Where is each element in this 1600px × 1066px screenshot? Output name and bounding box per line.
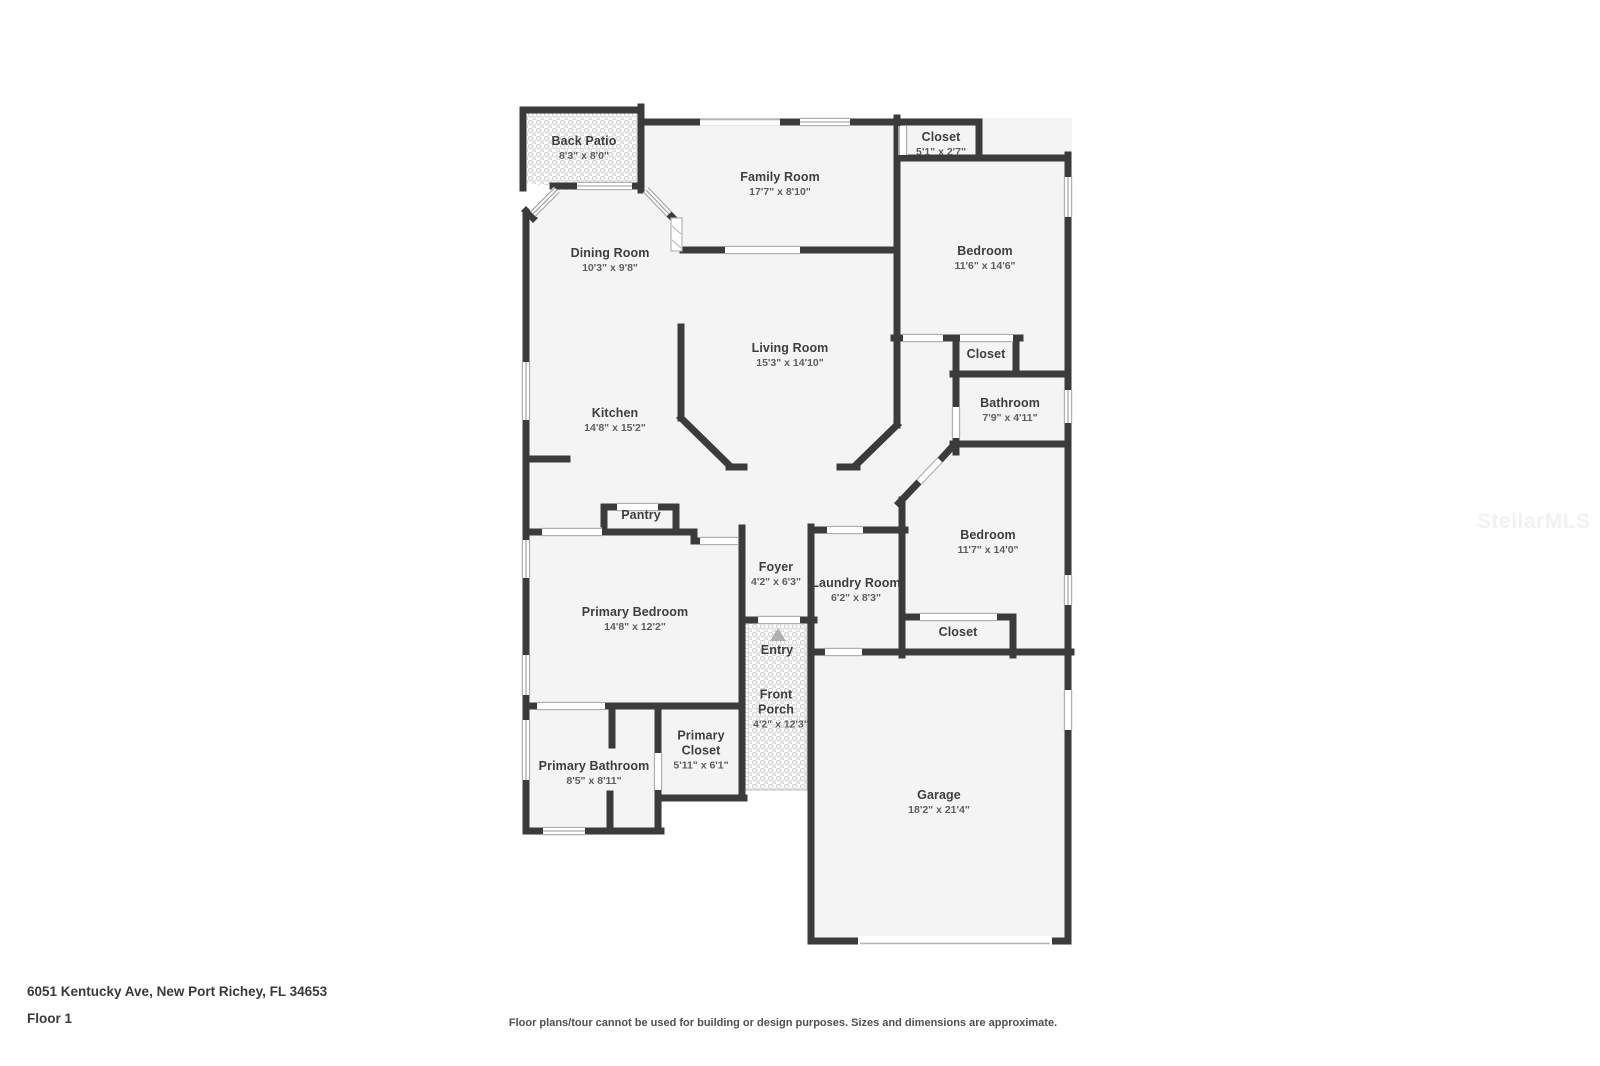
floor-label: Floor 1 [27, 1011, 72, 1026]
floor-plan-svg [0, 0, 1600, 1066]
dining-door-leaf [671, 218, 682, 251]
disclaimer-text: Floor plans/tour cannot be used for buil… [509, 1017, 1057, 1029]
garage-door [858, 936, 1052, 946]
floor-plan-page: Back Patio8'3" x 8'0" Family Room17'7" x… [0, 0, 1600, 1066]
mls-watermark: StellarMLS [1477, 510, 1591, 534]
front-porch-area [745, 623, 807, 790]
property-address: 6051 Kentucky Ave, New Port Richey, FL 3… [27, 984, 327, 999]
